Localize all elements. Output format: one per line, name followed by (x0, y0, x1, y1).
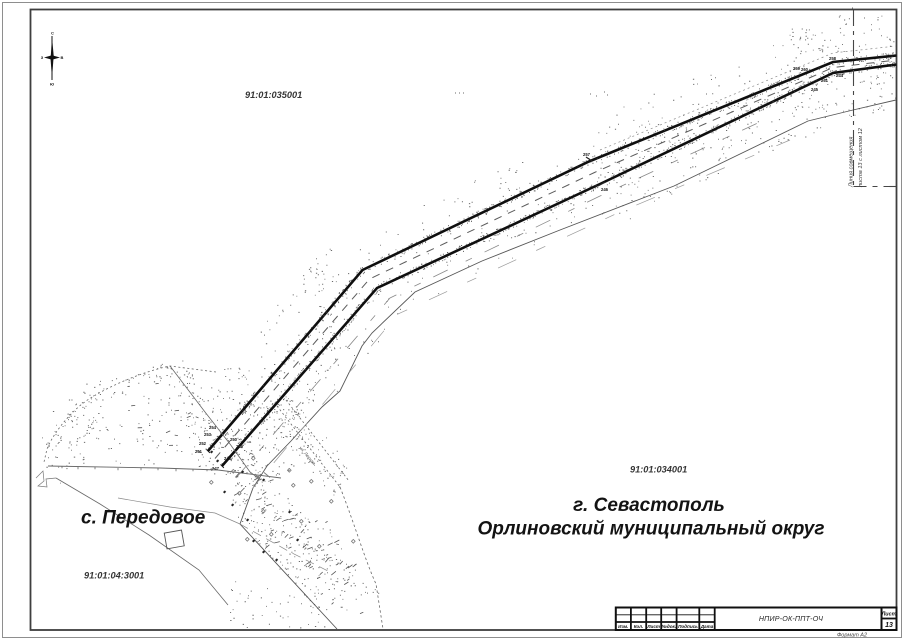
svg-text:Ю: Ю (50, 82, 54, 87)
svg-text:91:01:034001: 91:01:034001 (630, 465, 687, 475)
svg-text:В: В (61, 55, 64, 60)
svg-text:13: 13 (885, 622, 893, 629)
svg-text:250: 250 (230, 437, 238, 442)
svg-text:261: 261 (821, 78, 829, 83)
svg-text:245: 245 (811, 87, 819, 92)
svg-text:НПИР-ОК-ППТ-ОЧ: НПИР-ОК-ППТ-ОЧ (759, 615, 823, 623)
svg-text:№док.: №док. (662, 624, 677, 629)
svg-text:С: С (51, 31, 54, 36)
svg-text:91:01:035001: 91:01:035001 (245, 90, 302, 100)
svg-text:Дата: Дата (700, 624, 714, 629)
svg-text:Лист: Лист (881, 612, 897, 618)
svg-text:Орлиновский муниципальный окру: Орлиновский муниципальный округ (477, 519, 824, 540)
svg-text:259: 259 (793, 66, 801, 71)
svg-text:с. Передовое: с. Передовое (81, 508, 206, 529)
svg-text:253: 253 (204, 432, 212, 437)
svg-text:Линия совмещения: Линия совмещения (849, 137, 855, 188)
svg-text:244: 244 (836, 73, 844, 78)
svg-text:Формат А2: Формат А2 (837, 633, 867, 639)
svg-text:252: 252 (199, 441, 207, 446)
svg-text:Кол.: Кол. (634, 624, 644, 629)
svg-text:Подпись: Подпись (678, 624, 698, 629)
svg-text:260: 260 (801, 67, 809, 72)
svg-text:258: 258 (829, 56, 837, 61)
svg-text:248: 248 (224, 456, 232, 461)
svg-text:г. Севастополь: г. Севастополь (573, 495, 725, 516)
svg-text:Лист: Лист (646, 624, 660, 629)
svg-text:257: 257 (583, 152, 591, 157)
svg-text:Изм.: Изм. (618, 624, 628, 629)
svg-text:246: 246 (601, 187, 609, 192)
svg-text:листа 13 с листом 12: листа 13 с листом 12 (858, 127, 864, 188)
svg-text:91:01:04:3001: 91:01:04:3001 (84, 571, 144, 581)
